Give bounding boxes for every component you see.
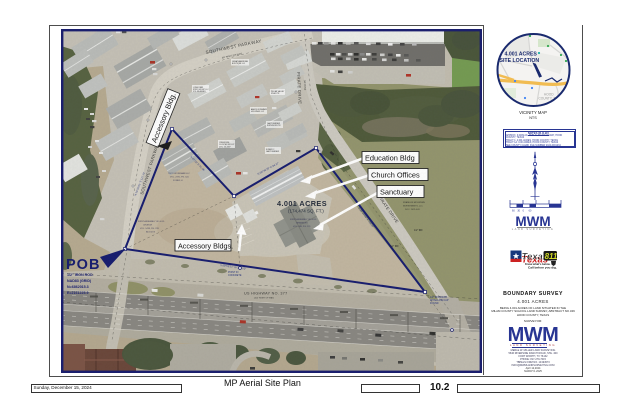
svg-text:60 30 0 60: 60 30 0 60 bbox=[512, 210, 532, 213]
svg-text:Call before you dig.: Call before you dig. bbox=[528, 266, 557, 270]
svg-text:SITE LOCATION: SITE LOCATION bbox=[500, 58, 540, 64]
svg-text:4.001 ACRES: 4.001 ACRES bbox=[505, 52, 538, 58]
svg-text:811: 811 bbox=[545, 252, 558, 261]
